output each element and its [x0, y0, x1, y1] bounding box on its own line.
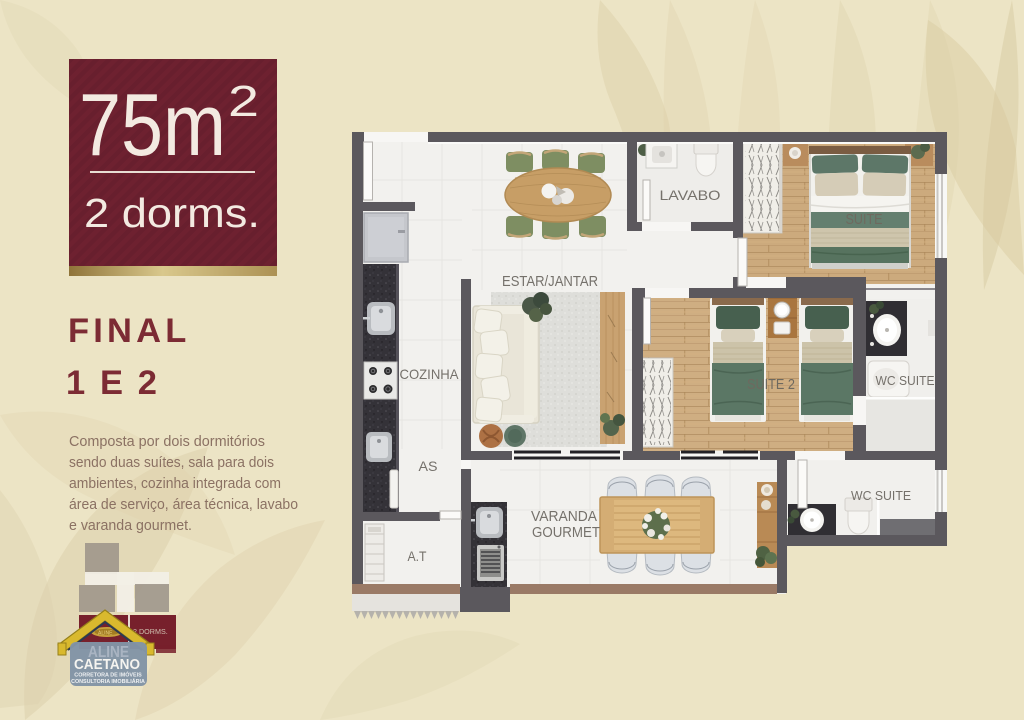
svg-text:CONSULTORIA IMOBILIÁRIA: CONSULTORIA IMOBILIÁRIA [71, 678, 145, 685]
svg-text:VARANDA: VARANDA [531, 508, 597, 525]
svg-text:WC SUITE: WC SUITE [876, 374, 935, 388]
svg-text:LAVABO: LAVABO [660, 187, 721, 203]
svg-text:FINAL: FINAL [68, 312, 191, 350]
svg-text:ESTAR/JANTAR: ESTAR/JANTAR [502, 273, 598, 290]
svg-text:CORRETORA DE IMÓVEIS: CORRETORA DE IMÓVEIS [74, 671, 142, 679]
svg-text:ambientes, cozinha integrada c: ambientes, cozinha integrada com [69, 475, 281, 492]
svg-text:AS: AS [419, 459, 438, 474]
svg-text:GOURMET: GOURMET [532, 524, 600, 541]
svg-text:sendo duas suítes, sala para d: sendo duas suítes, sala para dois [69, 454, 274, 471]
svg-text:SUITE: SUITE [846, 211, 883, 228]
svg-text:1 E 2: 1 E 2 [66, 364, 160, 402]
svg-text:COZINHA: COZINHA [400, 366, 460, 382]
svg-text:CAETANO: CAETANO [74, 657, 140, 673]
svg-text:área de serviço, área técnica,: área de serviço, área técnica, lavabo [69, 496, 298, 513]
svg-text:Composta por dois dormitórios: Composta por dois dormitórios [69, 433, 265, 450]
svg-text:A.T: A.T [408, 549, 427, 564]
svg-text:e varanda gourmet.: e varanda gourmet. [69, 517, 192, 534]
svg-text:SUITE 2: SUITE 2 [747, 376, 795, 393]
svg-text:75m: 75m [79, 75, 226, 174]
svg-text:WC SUITE: WC SUITE [851, 489, 911, 503]
svg-text:2 dorms.: 2 dorms. [84, 190, 260, 236]
svg-text:2: 2 [228, 77, 259, 126]
svg-text:ALINE: ALINE [98, 631, 113, 637]
